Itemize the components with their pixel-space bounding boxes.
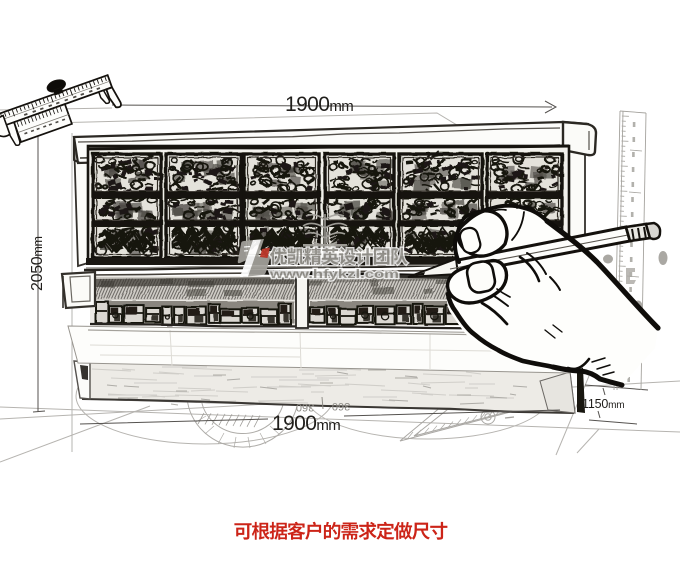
svg-text:www.hfykzl.com: www.hfykzl.com xyxy=(269,267,399,281)
svg-text:360: 360 xyxy=(332,400,350,412)
svg-text:1150mm: 1150mm xyxy=(582,397,624,411)
svg-text:2050mm: 2050mm xyxy=(29,236,46,291)
